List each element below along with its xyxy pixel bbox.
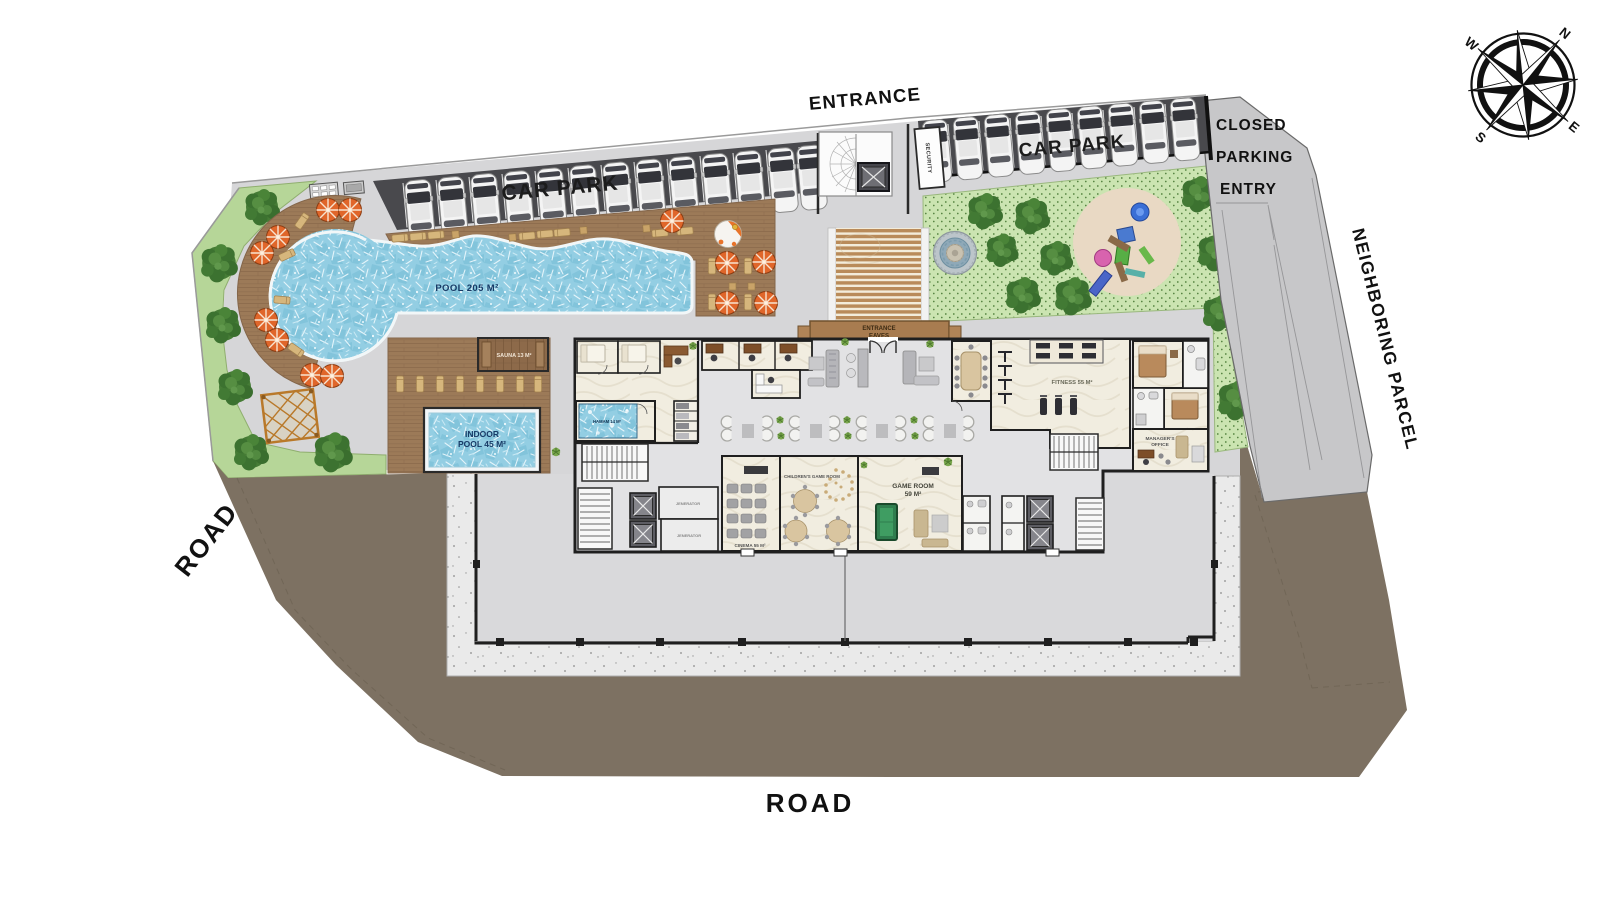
svg-text:INDOOR: INDOOR	[465, 429, 499, 439]
svg-text:CHILDREN'S GAME ROOM: CHILDREN'S GAME ROOM	[784, 474, 840, 479]
svg-text:JENERATOR: JENERATOR	[677, 533, 701, 538]
svg-text:PARKING: PARKING	[1216, 149, 1293, 166]
svg-text:ENTRANCE: ENTRANCE	[862, 326, 895, 332]
svg-text:59 M²: 59 M²	[905, 491, 922, 498]
svg-text:SAUNA 13 M²: SAUNA 13 M²	[497, 352, 532, 359]
svg-text:ROAD: ROAD	[766, 788, 855, 818]
svg-text:CINEMA 55 M²: CINEMA 55 M²	[735, 543, 766, 548]
svg-text:ENTRY: ENTRY	[1220, 181, 1277, 198]
svg-text:JENERATOR: JENERATOR	[676, 501, 700, 506]
svg-text:OFFICE: OFFICE	[1151, 442, 1169, 448]
svg-text:MANAGER'S: MANAGER'S	[1145, 436, 1175, 442]
svg-text:CLOSED: CLOSED	[1216, 117, 1287, 134]
svg-text:HAMAM 14 M²: HAMAM 14 M²	[593, 419, 622, 424]
svg-text:FITNESS 55 M²: FITNESS 55 M²	[1052, 379, 1093, 386]
svg-text:POOL 45 M²: POOL 45 M²	[458, 439, 506, 449]
svg-text:POOL 205 M²: POOL 205 M²	[435, 283, 498, 294]
svg-text:GAME ROOM: GAME ROOM	[892, 483, 934, 490]
